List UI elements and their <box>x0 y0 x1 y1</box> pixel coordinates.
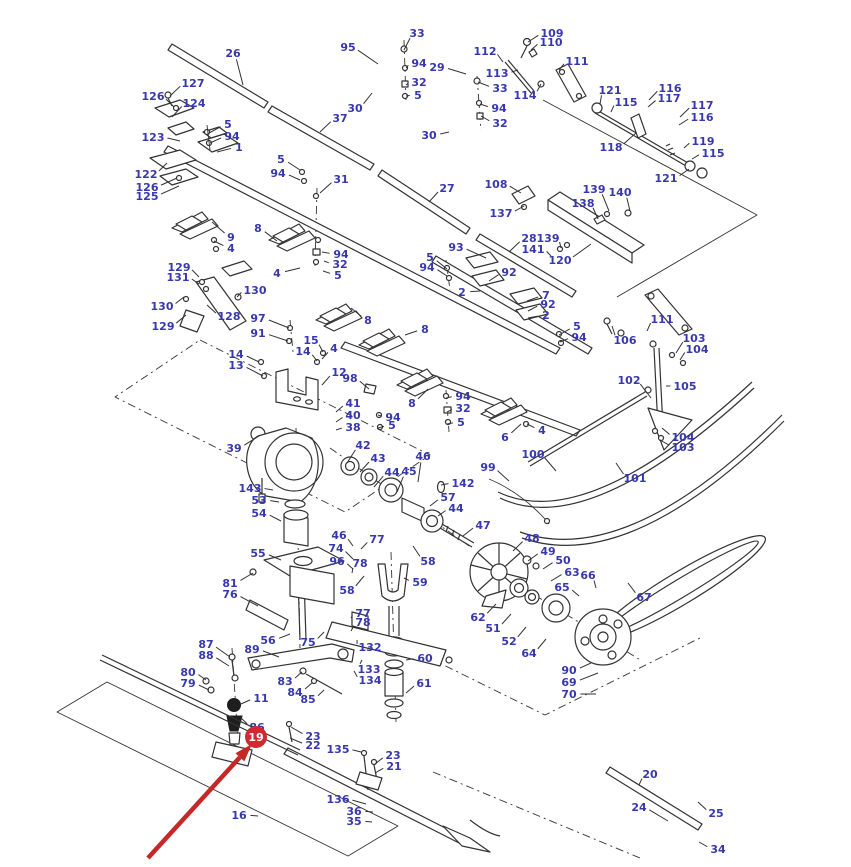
callout-label: 100 <box>522 448 545 461</box>
leader-line <box>528 35 538 42</box>
leader-line <box>324 261 329 263</box>
leader-line <box>478 82 489 86</box>
leader-line <box>649 91 657 100</box>
callout-label: 96 <box>329 555 345 568</box>
callout-label: 5 <box>388 419 396 432</box>
callout-label: 118 <box>600 141 623 154</box>
callout-label: 121 <box>655 172 678 185</box>
callout-label: 76 <box>222 588 238 601</box>
leader-line <box>279 634 290 638</box>
leader-line <box>269 320 289 328</box>
leader-line <box>580 673 598 680</box>
callout-label: 42 <box>355 439 370 452</box>
callout-label: 2 <box>542 309 550 322</box>
leader-line <box>365 811 373 812</box>
callout-label: 43 <box>370 452 385 465</box>
callout-label: 13 <box>228 359 243 372</box>
leader-line <box>318 632 324 639</box>
leader-line <box>692 155 699 159</box>
callout-label: 137 <box>490 207 513 220</box>
callout-label: 39 <box>226 442 241 455</box>
callout-label: 97 <box>250 312 265 325</box>
leader-line <box>375 768 383 773</box>
leader-line <box>440 132 449 134</box>
leader-line <box>680 353 685 360</box>
callout-label: 44 <box>384 466 400 479</box>
knife-section <box>316 304 362 331</box>
exploded-parts-diagram: 2612712612412359411221261259412913113013… <box>0 0 851 867</box>
leader-line <box>497 471 509 481</box>
callout-label: 66 <box>580 569 596 582</box>
leader-line <box>192 270 199 277</box>
callout-label: 127 <box>182 77 205 90</box>
callout-label: 138 <box>572 197 595 210</box>
leader-line <box>611 106 614 112</box>
callout-label: 113 <box>486 67 509 80</box>
callout-label: 112 <box>474 45 497 58</box>
callout-label: 33 <box>492 82 507 95</box>
leader-line <box>216 647 230 657</box>
callout-label: 6 <box>501 431 509 444</box>
callout-label: 115 <box>702 147 725 160</box>
leader-line <box>198 675 206 680</box>
callout-label: 34 <box>710 843 726 856</box>
leader-line <box>545 458 556 471</box>
leader-line <box>247 367 263 376</box>
callout-label: 142 <box>452 477 475 490</box>
knife-section <box>172 212 218 239</box>
callout-label: 54 <box>251 507 267 520</box>
leader-line <box>318 690 324 696</box>
leader-line <box>336 428 342 430</box>
leader-line <box>336 417 342 422</box>
leader-line <box>413 546 420 556</box>
callout-label: 61 <box>416 677 431 690</box>
callout-label: 31 <box>333 173 348 186</box>
leader-line <box>463 528 473 536</box>
callout-label: 128 <box>218 310 241 323</box>
callout-label: 47 <box>475 519 490 532</box>
callout-label: 114 <box>514 89 537 102</box>
callout-label: 67 <box>636 591 651 604</box>
leader-line <box>270 501 279 502</box>
callout-label: 4 <box>227 242 235 255</box>
leader-line <box>648 101 656 107</box>
leader-line <box>628 583 635 593</box>
callout-label: 32 <box>455 402 470 415</box>
callout-label: 45 <box>401 465 416 478</box>
leader-line <box>448 69 466 74</box>
callout-label: 122 <box>135 168 158 181</box>
callout-label: 77 <box>369 533 384 546</box>
leader-line <box>361 542 367 549</box>
callout-label: 108 <box>485 178 508 191</box>
callout-label: 94 <box>419 261 435 274</box>
callout-label: 105 <box>674 380 697 393</box>
callout-label: 32 <box>492 117 507 130</box>
leader-line <box>176 297 184 304</box>
callout-label: 22 <box>305 739 320 752</box>
callout-label: 141 <box>522 243 545 256</box>
leader-line <box>214 241 223 246</box>
callout-label: 33 <box>409 27 424 40</box>
callout-label: 93 <box>448 241 463 254</box>
callout-label: 106 <box>614 334 637 347</box>
leader-line <box>680 108 689 117</box>
parts-diagram-page: 2612712612412359411221261259412913113013… <box>0 0 851 867</box>
leader-line <box>216 658 229 666</box>
callout-label: 1 <box>235 141 243 154</box>
leader-line <box>236 59 243 85</box>
callout-label: 131 <box>167 271 190 284</box>
knife-section <box>397 369 443 396</box>
callout-label: 63 <box>564 566 579 579</box>
leader-line <box>699 842 707 847</box>
leader-line <box>358 50 378 64</box>
leader-line <box>429 192 438 202</box>
callout-label: 55 <box>250 547 265 560</box>
callout-label: 99 <box>480 461 495 474</box>
leader-line <box>511 424 521 433</box>
leader-line <box>170 86 180 96</box>
callout-label: 16 <box>231 809 247 822</box>
callout-label: 52 <box>501 635 516 648</box>
leader-line <box>649 810 668 821</box>
callout-label: 4 <box>330 342 338 355</box>
leader-line <box>679 119 688 125</box>
leader-line <box>322 376 330 385</box>
callout-label: 35 <box>346 815 361 828</box>
callout-label: 8 <box>408 397 416 410</box>
leader-line <box>543 563 553 569</box>
callout-label: 130 <box>151 300 174 313</box>
callout-label: 5 <box>414 89 422 102</box>
callout-label: 89 <box>244 643 259 656</box>
callout-label: 21 <box>386 760 401 773</box>
callout-label: 78 <box>355 616 370 629</box>
callout-label: 24 <box>631 801 647 814</box>
callout-label: 103 <box>672 441 695 454</box>
leader-line <box>247 356 259 362</box>
callout-label: 20 <box>642 768 658 781</box>
callout-label: 58 <box>420 555 435 568</box>
highlight-arrow <box>148 757 240 858</box>
callout-label: 126 <box>142 90 165 103</box>
callout-label: 74 <box>328 542 344 555</box>
leader-line <box>480 104 488 107</box>
callout-label: 11 <box>253 692 268 705</box>
callout-label: 102 <box>618 374 641 387</box>
callout-label: 44 <box>448 502 464 515</box>
leader-line <box>356 576 364 586</box>
leader-line <box>627 198 630 211</box>
leader-line <box>291 727 302 734</box>
callout-label: 129 <box>152 320 175 333</box>
callout-label: 25 <box>708 807 723 820</box>
leader-line <box>580 663 591 668</box>
callout-label: 94 <box>411 57 427 70</box>
callout-label: 32 <box>411 76 426 89</box>
callout-label: 38 <box>345 421 360 434</box>
callout-label: 111 <box>566 55 589 68</box>
leader-line <box>684 143 689 148</box>
callout-label: 46 <box>415 450 431 463</box>
leader-line <box>288 162 300 170</box>
leader-line <box>320 183 332 193</box>
callout-label: 26 <box>225 47 241 60</box>
callout-label: 75 <box>300 636 315 649</box>
leader-line <box>470 291 480 292</box>
callout-label: 94 <box>491 102 507 115</box>
leader-line <box>624 133 636 144</box>
leader-line <box>365 821 372 822</box>
callout-label: 5 <box>457 416 465 429</box>
callout-label: 65 <box>554 581 569 594</box>
callout-label: 123 <box>142 131 165 144</box>
callout-label: 70 <box>561 688 577 701</box>
leader-line <box>698 802 706 810</box>
callout-label: 85 <box>300 693 315 706</box>
callout-label: 8 <box>364 314 372 327</box>
callout-label: 91 <box>250 327 265 340</box>
callout-label: 78 <box>352 557 367 570</box>
callout-label: 130 <box>244 284 267 297</box>
callout-labels: 2612712612412359411221261259412913113013… <box>135 27 726 856</box>
callout-label: 60 <box>417 652 433 665</box>
callout-label: 116 <box>691 111 714 124</box>
leader-line <box>348 539 353 546</box>
callout-label: 132 <box>359 641 382 654</box>
callout-label: 30 <box>421 129 437 142</box>
callout-label: 140 <box>609 186 632 199</box>
leader-line <box>240 573 253 580</box>
leader-line <box>364 93 372 104</box>
leader-line <box>518 627 526 637</box>
leader-line <box>269 335 288 341</box>
callout-label: 46 <box>331 529 347 542</box>
callout-label: 27 <box>439 182 454 195</box>
callout-label: 117 <box>658 92 681 105</box>
leader-line <box>497 54 503 62</box>
callout-label: 8 <box>254 222 262 235</box>
highlighted-part-number: 19 <box>248 731 263 744</box>
leader-line <box>502 614 511 624</box>
leader-line <box>323 271 330 273</box>
callout-label: 98 <box>342 372 357 385</box>
leader-line <box>167 138 180 141</box>
callout-label: 115 <box>615 96 638 109</box>
leader-line <box>295 672 302 678</box>
callout-label: 92 <box>501 266 516 279</box>
callout-label: 104 <box>686 343 709 356</box>
callout-label: 95 <box>340 41 355 54</box>
leader-line <box>289 175 300 180</box>
callout-label: 51 <box>485 622 500 635</box>
leader-line <box>161 186 179 194</box>
leader-line <box>305 683 312 689</box>
leader-line <box>538 639 546 649</box>
callout-label: 53 <box>251 494 266 507</box>
callout-label: 5 <box>334 269 342 282</box>
leader-line <box>250 815 258 816</box>
callout-label: 135 <box>327 743 350 756</box>
callout-label: 56 <box>260 634 276 647</box>
callout-label: 94 <box>270 167 286 180</box>
callout-label: 29 <box>429 61 444 74</box>
callout-label: 88 <box>198 649 213 662</box>
callout-label: 62 <box>470 611 485 624</box>
leader-line <box>616 463 624 474</box>
callout-label: 64 <box>521 647 537 660</box>
callout-label: 101 <box>624 472 647 485</box>
leader-line <box>509 242 520 252</box>
leader-line <box>352 800 366 804</box>
callout-label: 37 <box>332 112 347 125</box>
leader-line <box>199 685 209 690</box>
knife-section <box>269 224 315 251</box>
leader-line <box>285 268 300 272</box>
leader-line <box>322 252 330 253</box>
rail-27 <box>378 170 470 234</box>
callout-label: 124 <box>183 97 206 110</box>
leader-line <box>320 122 331 132</box>
leader-line <box>352 750 361 752</box>
leader-line <box>406 686 414 693</box>
callout-label: 5 <box>277 153 285 166</box>
callout-label: 110 <box>540 36 563 49</box>
callout-label: 134 <box>359 674 382 687</box>
callout-label: 125 <box>136 190 159 203</box>
callout-label: 58 <box>339 584 354 597</box>
callout-label: 4 <box>273 267 281 280</box>
leader-line <box>573 244 591 257</box>
leader-line <box>241 700 250 704</box>
callout-label: 14 <box>295 345 311 358</box>
callout-label: 49 <box>540 545 555 558</box>
callout-label: 111 <box>651 313 674 326</box>
leader-line <box>336 406 343 412</box>
leader-line <box>418 462 421 482</box>
leader-line <box>680 169 689 176</box>
callout-label: 79 <box>180 677 195 690</box>
highlight-item-19: 19 <box>148 726 267 858</box>
callout-label: 48 <box>524 532 539 545</box>
callout-label: 2 <box>458 286 466 299</box>
leader-line <box>270 515 281 521</box>
callout-label: 94 <box>571 331 587 344</box>
callout-label: 4 <box>538 424 546 437</box>
callout-label: 120 <box>549 254 572 267</box>
leader-line <box>572 590 579 596</box>
callout-label: 8 <box>421 323 429 336</box>
callout-label: 30 <box>347 102 363 115</box>
callout-label: 139 <box>583 183 606 196</box>
leader-line <box>430 500 438 506</box>
callout-label: 59 <box>412 576 427 589</box>
leader-line <box>405 331 417 335</box>
